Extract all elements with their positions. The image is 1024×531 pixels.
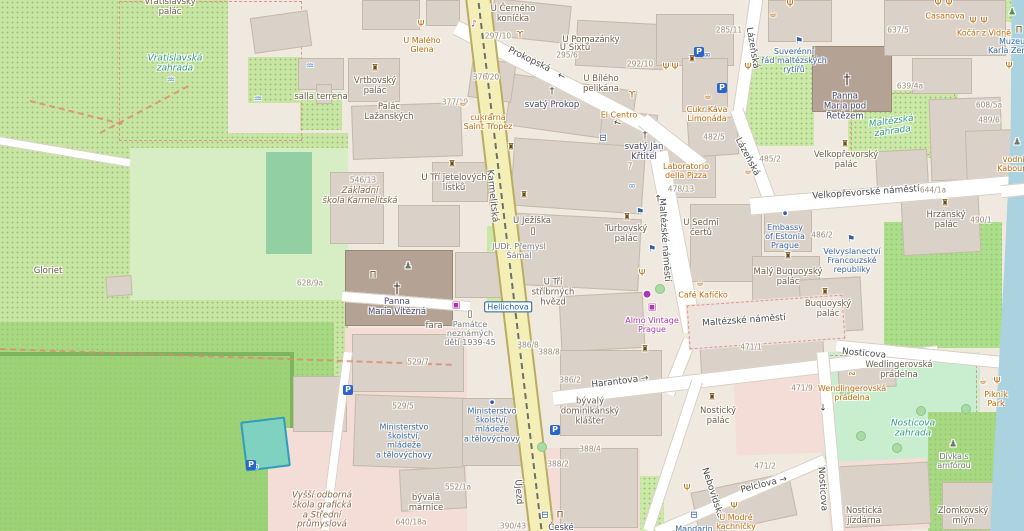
building xyxy=(316,84,332,104)
cafe-icon: ☕ xyxy=(769,11,777,20)
church-cross-icon: † xyxy=(844,73,851,87)
hotel-icon: ⊟ xyxy=(541,512,549,521)
office-dot-icon: ● xyxy=(783,212,787,217)
castle-icon: ♜ xyxy=(784,253,792,262)
church-building xyxy=(812,46,892,112)
museum-icon: Π xyxy=(557,512,564,521)
restaurant-icon: Ψ xyxy=(1005,63,1012,72)
parking-icon: P xyxy=(343,385,353,395)
building xyxy=(351,102,463,160)
map-canvas[interactable]: ProkopskáKarmelitskáÚjezdLázeňskáLázeňsk… xyxy=(0,0,1024,531)
cafe-icon: ☕ xyxy=(979,378,987,387)
building xyxy=(836,462,931,529)
cafe-icon: ☕ xyxy=(459,100,467,109)
church-cross-icon: † xyxy=(394,282,401,296)
building xyxy=(432,162,488,202)
museum-icon: Π xyxy=(1016,27,1023,36)
castle-icon: ♜ xyxy=(941,200,949,209)
fountain-icon: ♒ xyxy=(254,96,262,105)
parking-icon: P xyxy=(694,47,704,57)
hotel-icon: ⊟ xyxy=(599,135,607,144)
parking-icon: P xyxy=(717,83,727,93)
statue-icon: ♟ xyxy=(1013,139,1021,148)
statue-icon: ♟ xyxy=(949,441,957,450)
tree xyxy=(840,387,850,397)
fountain-icon: ♒ xyxy=(306,63,314,72)
building xyxy=(764,210,812,252)
building xyxy=(105,275,132,297)
memorial-icon: ▯ xyxy=(468,311,473,320)
tree xyxy=(655,284,665,294)
castle-icon: ♜ xyxy=(708,394,716,403)
building xyxy=(912,58,972,94)
bridge xyxy=(1000,183,1024,198)
shop-icon: ● xyxy=(643,291,651,300)
parking-icon: P xyxy=(246,460,256,470)
restaurant-icon: Ψ xyxy=(993,378,1000,387)
shop-icon: ▣ xyxy=(648,304,657,313)
bar-icon: ϒ xyxy=(629,92,635,101)
fountain-icon: ♒ xyxy=(167,77,175,86)
building xyxy=(560,448,638,528)
cafe-icon: ☕ xyxy=(696,280,704,289)
restaurant-icon: Ψ xyxy=(744,64,751,73)
building xyxy=(362,0,420,30)
restaurant-icon: Ψ xyxy=(730,503,737,512)
castle-icon: ♜ xyxy=(821,289,829,298)
flag-icon: ⚑ xyxy=(795,38,803,47)
castle-icon: ♜ xyxy=(623,214,631,223)
restaurant-icon: Ψ xyxy=(945,0,952,9)
flag-icon: ⚑ xyxy=(847,236,855,245)
restaurant-icon: Ψ xyxy=(662,64,669,73)
tree xyxy=(892,443,902,453)
bicycle-icon: ∞ xyxy=(703,52,711,61)
flag-icon: ⚑ xyxy=(648,246,656,255)
building xyxy=(330,172,384,244)
statue-icon: ♟ xyxy=(404,263,412,272)
castle-icon: ♜ xyxy=(507,144,515,153)
church-cross-icon: † xyxy=(643,131,648,141)
castle-icon: ♜ xyxy=(841,141,849,150)
restaurant-icon: Ψ xyxy=(980,18,987,27)
building xyxy=(398,205,460,247)
museum-icon: Π xyxy=(370,272,377,281)
tree xyxy=(916,406,926,416)
scrub-area xyxy=(266,152,312,254)
restaurant-icon: Ψ xyxy=(671,64,678,73)
building xyxy=(559,292,646,352)
castle-icon: ♜ xyxy=(371,65,379,74)
lawn-area xyxy=(130,148,348,300)
garden-area xyxy=(744,56,814,146)
castle-icon: ♜ xyxy=(448,161,456,170)
restaurant-icon: Ψ xyxy=(786,1,793,10)
building xyxy=(510,137,646,214)
building xyxy=(426,0,460,26)
restaurant-icon: Ψ xyxy=(417,21,424,30)
memorial-icon: ▯ xyxy=(531,228,536,237)
tree xyxy=(856,431,866,441)
building xyxy=(575,20,665,71)
building xyxy=(353,394,467,470)
restaurant-icon: Ψ xyxy=(934,0,941,9)
office-dot-icon: ● xyxy=(490,401,494,406)
bar-icon: ϒ xyxy=(517,32,523,41)
tree xyxy=(961,404,971,414)
castle-icon: ♜ xyxy=(641,346,649,355)
restaurant-icon: Ψ xyxy=(638,270,645,279)
hotel-icon: ⊟ xyxy=(690,512,698,521)
oneway-arrow-icon: ↓ xyxy=(819,405,827,414)
building xyxy=(399,466,467,511)
church-cross-icon: † xyxy=(550,87,555,97)
music-venue-icon: ♪ xyxy=(471,21,477,30)
restaurant-icon: Ψ xyxy=(969,18,976,27)
tree xyxy=(537,442,547,452)
bicycle-icon: ∞ xyxy=(628,183,636,192)
flag-icon: ⚑ xyxy=(636,209,644,218)
building xyxy=(512,213,642,291)
cafe-icon: ☕ xyxy=(704,93,712,102)
statue-icon: ♟ xyxy=(1008,9,1016,18)
cafe-icon: ☕ xyxy=(744,168,752,177)
bakery-icon: ∾ xyxy=(848,371,856,380)
castle-icon: ♜ xyxy=(520,192,528,201)
oneway-arrow-icon: ↑ xyxy=(654,196,662,205)
parking-icon: P xyxy=(550,425,560,435)
shop-icon: ▣ xyxy=(452,302,461,311)
restaurant-icon: Ψ xyxy=(683,485,690,494)
